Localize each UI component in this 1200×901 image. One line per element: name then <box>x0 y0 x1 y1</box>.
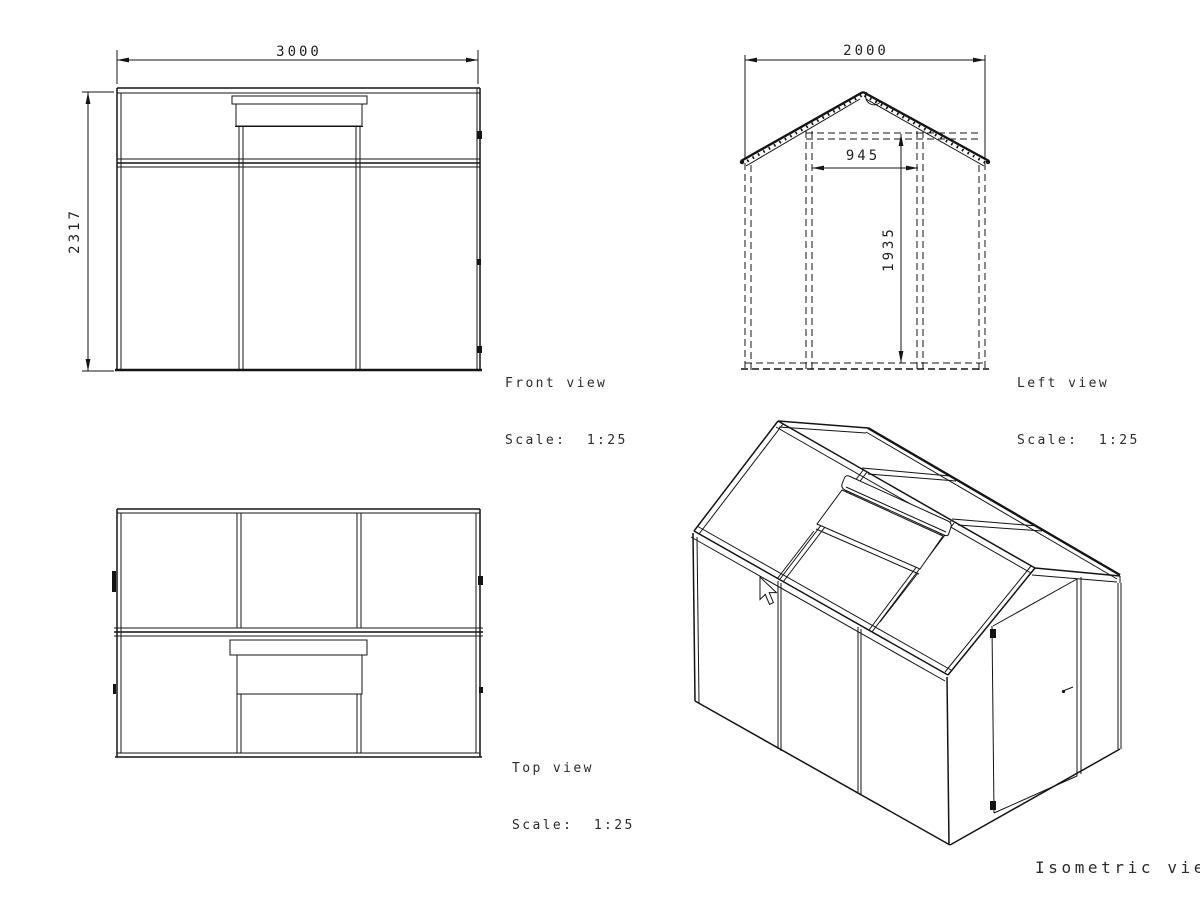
top-view-drawing <box>112 509 483 757</box>
front-view-label: Front view Scale: 1:25 <box>505 336 628 488</box>
hinge-mark <box>478 576 483 585</box>
cad-viewport: 3000 2317 2000 945 1935 Front view Scale… <box>0 0 1200 901</box>
left-view-label: Left view Scale: 1:25 <box>1017 336 1140 488</box>
hinge-mark <box>479 687 483 693</box>
top-view-scale: Scale: 1:25 <box>512 816 635 835</box>
dimension-door-height: 1935 <box>881 219 897 279</box>
front-dimension-height <box>82 92 114 371</box>
hinge-mark <box>477 131 482 139</box>
dimension-front-width: 3000 <box>269 44 329 60</box>
door-hinge <box>990 629 996 638</box>
top-roof-vent <box>230 640 367 694</box>
left-view-title: Left view <box>1017 374 1140 393</box>
front-view-drawing <box>115 88 482 370</box>
front-view-scale: Scale: 1:25 <box>505 431 628 450</box>
isometric-view-label: Isometric view Scale: 1:25 <box>1035 818 1200 901</box>
top-view-title: Top view <box>512 759 635 778</box>
top-view-label: Top view Scale: 1:25 <box>512 721 635 873</box>
iso-door <box>990 577 1081 813</box>
hinge-mark <box>113 684 116 694</box>
dimension-left-width: 2000 <box>836 43 896 59</box>
hinge-mark <box>112 571 116 592</box>
front-view-title: Front view <box>505 374 628 393</box>
left-view-scale: Scale: 1:25 <box>1017 431 1140 450</box>
door-hinge <box>990 801 996 810</box>
front-roof-vent <box>232 96 367 127</box>
isometric-view-title: Isometric view <box>1035 858 1200 878</box>
hinge-mark <box>477 346 482 353</box>
door-handle-knob <box>1062 690 1065 693</box>
left-view-drawing <box>740 92 990 370</box>
door-dimension-width <box>812 166 918 171</box>
dimension-door-width: 945 <box>833 148 893 164</box>
hinge-mark <box>477 259 481 265</box>
dimension-front-height: 2317 <box>67 201 83 261</box>
